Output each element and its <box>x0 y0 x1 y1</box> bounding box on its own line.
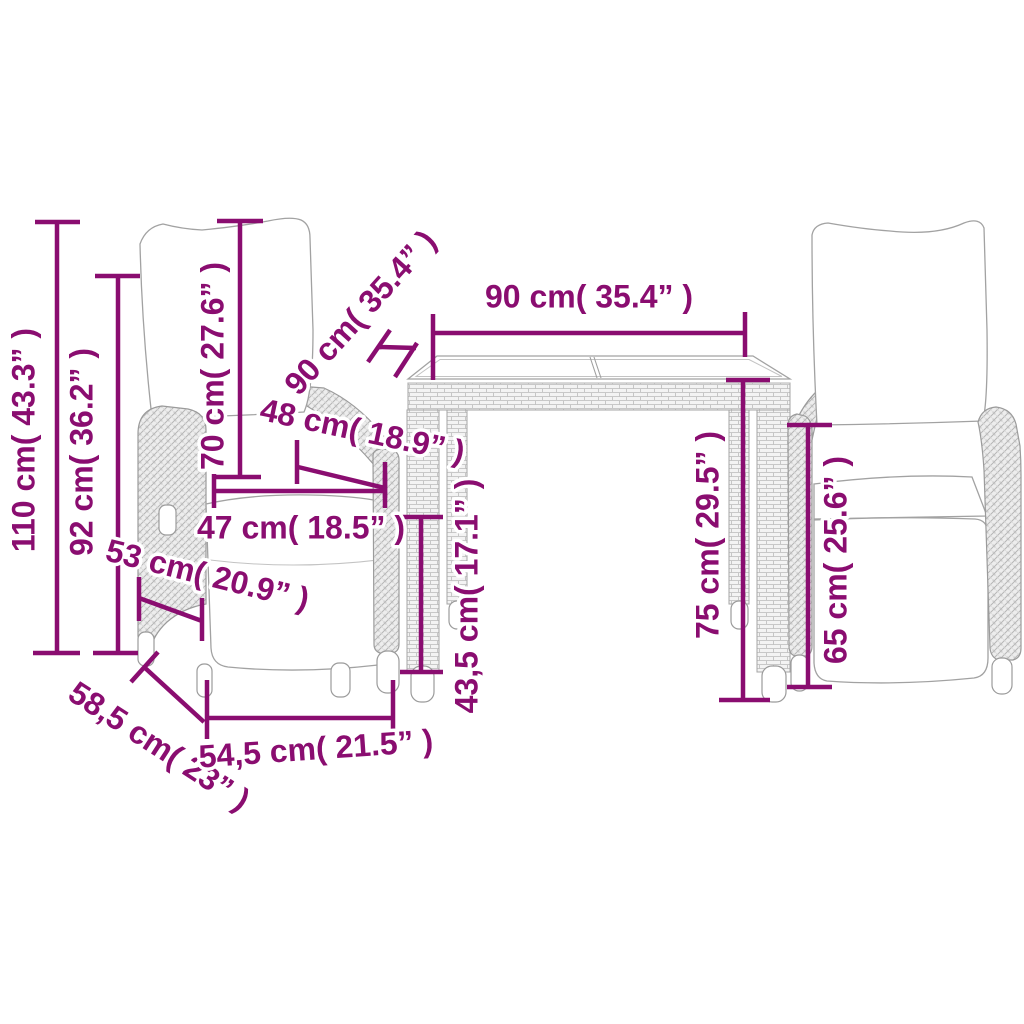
right-chair-back-cushion <box>812 221 987 425</box>
label-table-width: 90 cm( 35.4” ) <box>485 278 693 314</box>
diagram-canvas: 110 cm( 43.3” ) 92 cm( 36.2” ) 70 cm( 27… <box>0 0 1024 1024</box>
label-chair-total-height: 110 cm( 43.3” ) <box>5 328 41 552</box>
dimension-diagram: 110 cm( 43.3” ) 92 cm( 36.2” ) 70 cm( 27… <box>0 0 1024 1024</box>
left-chair-center-foot <box>331 663 350 697</box>
right-chair-right-foot <box>992 658 1012 694</box>
table-foot-back-right <box>731 601 748 629</box>
label-table-frame-clearance: 43,5 cm( 17.1” ) <box>448 479 484 714</box>
label-chair-backrest-height: 70 cm( 27.6” ) <box>194 262 230 470</box>
dim-line-92 <box>93 276 140 653</box>
table-leg-front-right <box>757 410 790 672</box>
table-leg-back-right <box>729 410 749 604</box>
label-chair-seatback-height: 65 cm( 25.6” ) <box>817 456 853 664</box>
label-chair-back-height: 92 cm( 36.2” ) <box>63 348 99 556</box>
left-chair-right-foot <box>377 651 399 693</box>
label-chair-base-width: 54,5 cm( 21.5” ) <box>197 722 434 774</box>
table-apron <box>408 383 790 410</box>
left-chair-front-foot <box>197 664 212 697</box>
dim-line-90-depth <box>368 330 417 377</box>
table-foot-front-right <box>762 666 786 702</box>
label-table-height: 75 cm( 29.5” ) <box>689 431 725 639</box>
left-chair-recline-lever <box>159 505 176 535</box>
label-chair-seat-width: 47 cm( 18.5” ) <box>197 509 405 545</box>
